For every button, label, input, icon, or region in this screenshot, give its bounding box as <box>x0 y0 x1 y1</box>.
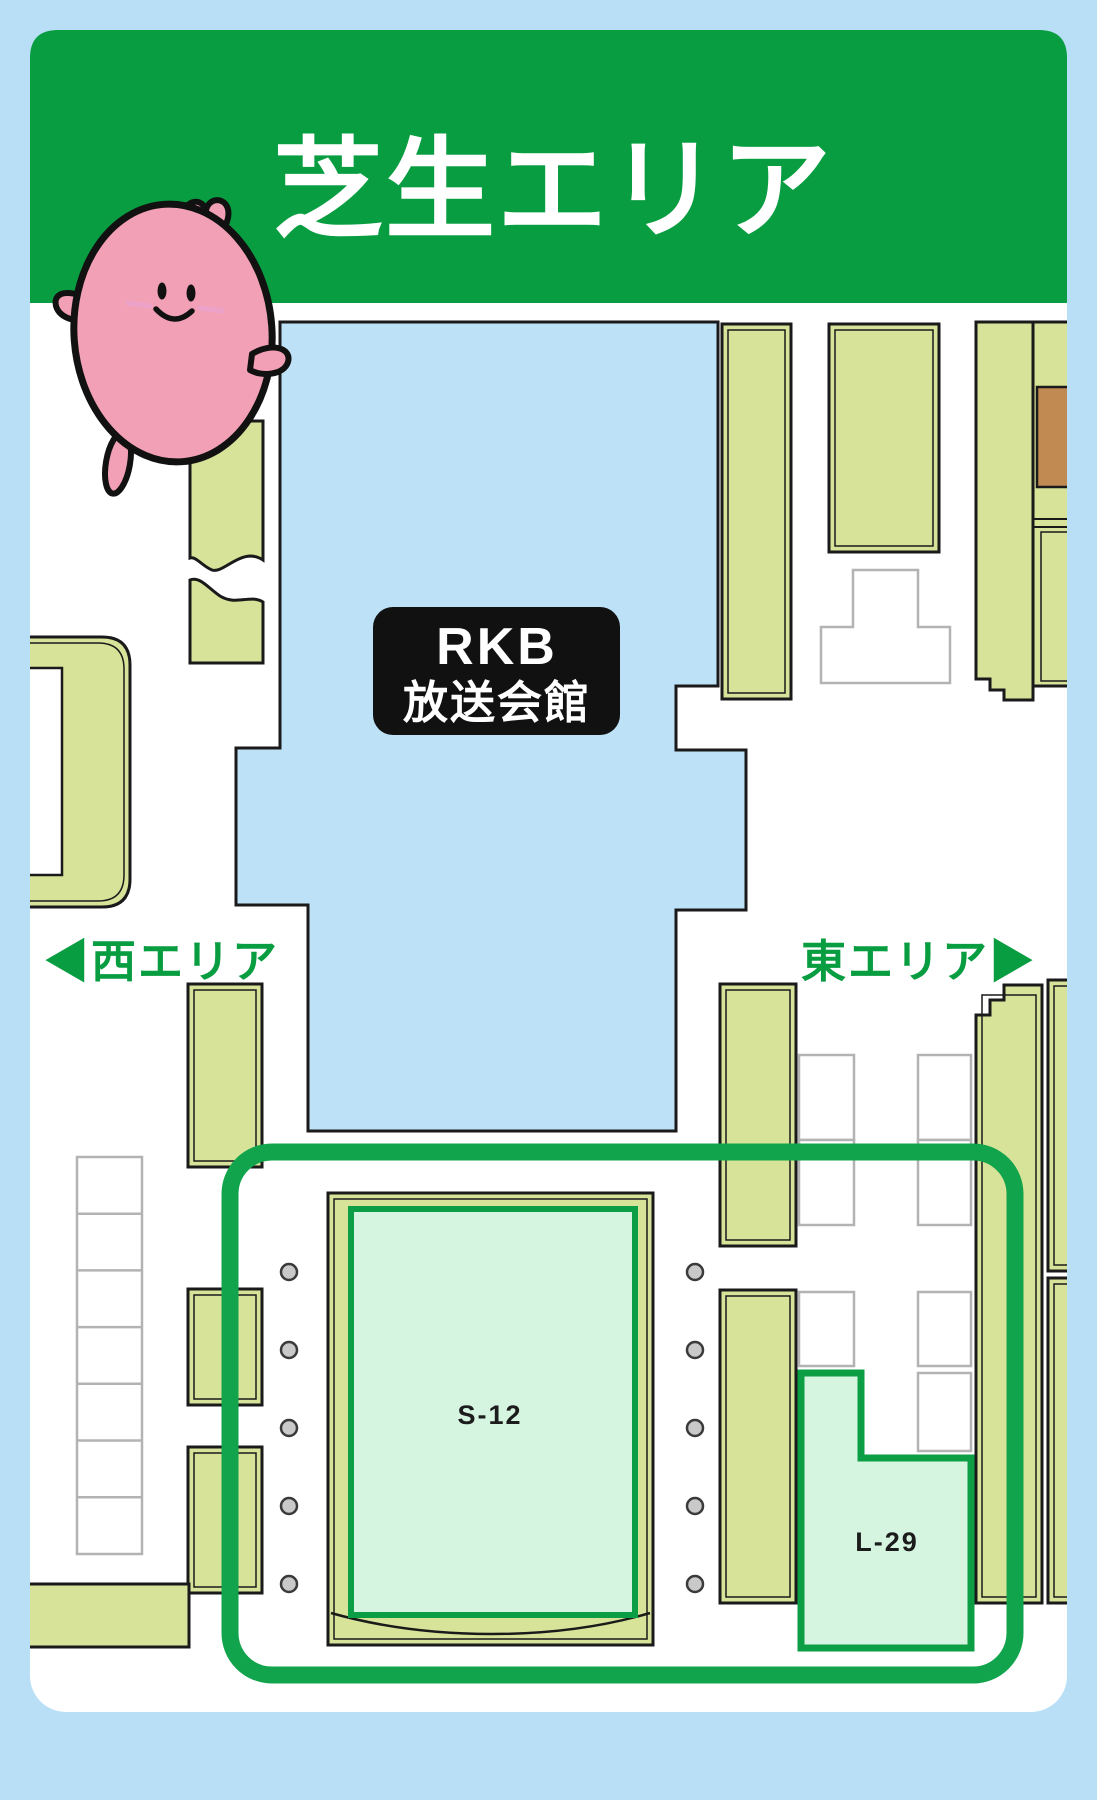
bench-ladder-frame <box>77 1157 142 1554</box>
planter-strip-stepped <box>976 322 1033 700</box>
stall-slots-left-column <box>799 1055 854 1366</box>
path-dot <box>281 1498 297 1514</box>
area-link-west[interactable]: ◀西エリア <box>44 936 279 987</box>
planter-bottom-bar <box>20 1584 189 1647</box>
page-title: 芝生エリア <box>273 129 833 252</box>
planter-strip <box>829 324 939 552</box>
path-dot <box>687 1264 703 1280</box>
stall-slot <box>918 1373 971 1451</box>
path-dot <box>281 1576 297 1592</box>
booth-s12-label: S-12 <box>457 1400 522 1430</box>
path-dot <box>687 1576 703 1592</box>
mascot-eye <box>158 283 167 300</box>
building-label-line1: RKB <box>436 618 558 676</box>
planter-edge-strip <box>1033 322 1073 686</box>
planter-strip <box>722 324 791 699</box>
path-dot <box>687 1420 703 1436</box>
path-dot <box>281 1264 297 1280</box>
stall-slot <box>799 1055 854 1140</box>
path-dot <box>687 1498 703 1514</box>
mascot-blush <box>200 308 222 311</box>
stall-slot <box>918 1292 971 1366</box>
area-link-east[interactable]: 東エリア▶ <box>801 936 1036 987</box>
mascot-eye <box>187 285 196 302</box>
planter-block <box>188 984 262 1167</box>
bench-ladder <box>77 1157 142 1554</box>
path-dot <box>281 1420 297 1436</box>
lawn-area-map-page: 芝生エリア RKB 放送会館 ◀西エリア 東エリア▶ S-12 L-29 <box>0 0 1097 1800</box>
mascot-blush <box>128 303 150 306</box>
building-label: RKB 放送会館 <box>373 607 620 735</box>
booth-l29-label: L-29 <box>855 1527 919 1557</box>
stall-slot <box>799 1292 854 1366</box>
building-label-line2: 放送会館 <box>403 677 591 728</box>
planter-block <box>720 1290 796 1603</box>
path-dot <box>281 1342 297 1358</box>
planter-block <box>720 984 796 1246</box>
stall-slot <box>918 1055 971 1140</box>
path-dot <box>687 1342 703 1358</box>
mascot-arm-right <box>250 348 289 374</box>
